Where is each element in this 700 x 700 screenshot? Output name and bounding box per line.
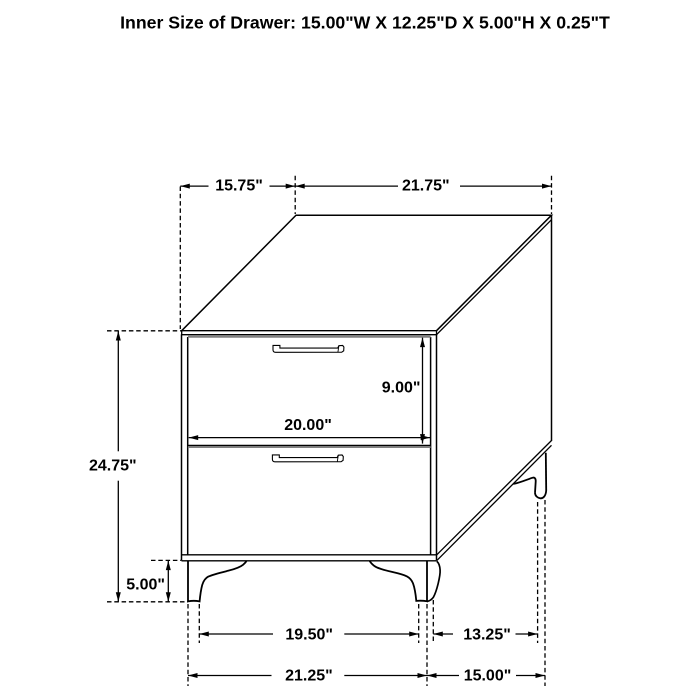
svg-text:15.75": 15.75" (215, 178, 263, 195)
svg-text:9.00": 9.00" (382, 380, 421, 397)
svg-text:15.00": 15.00" (464, 668, 512, 685)
svg-text:5.00": 5.00" (126, 577, 165, 594)
svg-text:19.50": 19.50" (285, 626, 333, 643)
svg-text:Inner Size of Drawer: 15.00"W: Inner Size of Drawer: 15.00"W X 12.25"D … (120, 12, 610, 32)
svg-text:24.75": 24.75" (89, 458, 137, 475)
svg-text:21.75": 21.75" (402, 178, 450, 195)
svg-text:13.25": 13.25" (463, 626, 511, 643)
svg-text:21.25": 21.25" (285, 668, 333, 685)
svg-text:20.00": 20.00" (284, 417, 332, 434)
